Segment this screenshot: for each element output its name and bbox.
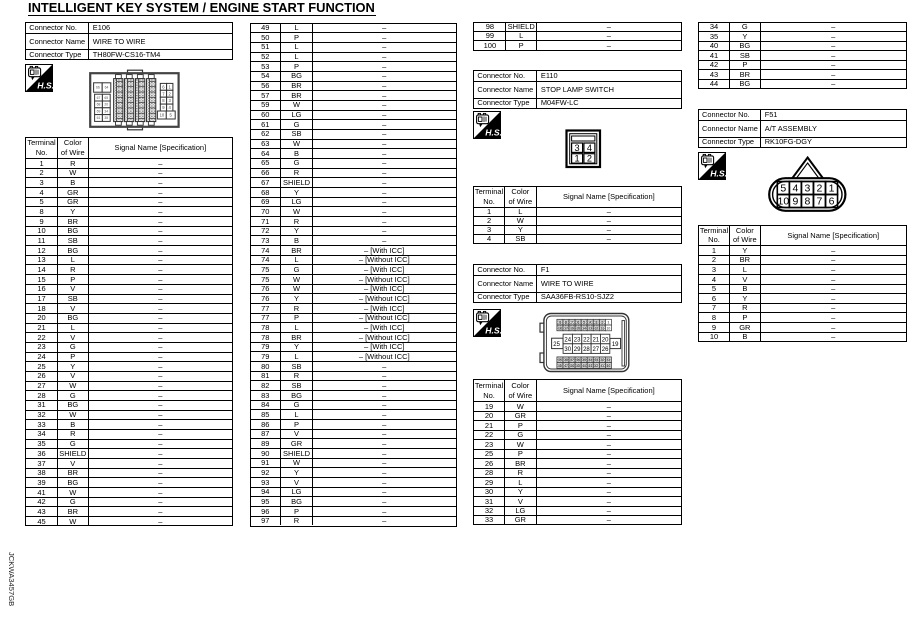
svg-text:19: 19 <box>612 342 619 348</box>
svg-text:23: 23 <box>574 337 581 343</box>
svg-text:31: 31 <box>607 358 611 362</box>
svg-text:38: 38 <box>564 358 568 362</box>
svg-text:20: 20 <box>104 103 108 107</box>
svg-text:4: 4 <box>792 183 798 195</box>
svg-text:H.S.: H.S. <box>486 325 502 335</box>
svg-text:5: 5 <box>780 183 786 195</box>
svg-text:45: 45 <box>576 363 580 367</box>
svg-text:16: 16 <box>570 326 574 330</box>
svg-text:33: 33 <box>594 358 598 362</box>
svg-text:41: 41 <box>600 363 604 367</box>
svg-text:67: 67 <box>97 96 101 100</box>
svg-text:36: 36 <box>576 358 580 362</box>
svg-text:22: 22 <box>583 337 590 343</box>
svg-text:2: 2 <box>817 183 823 195</box>
svg-text:11: 11 <box>601 326 605 330</box>
svg-text:7: 7 <box>817 196 823 208</box>
svg-text:40: 40 <box>607 363 611 367</box>
svg-text:30: 30 <box>564 347 571 353</box>
svg-text:H.S.: H.S. <box>486 127 502 137</box>
svg-text:24: 24 <box>564 337 571 343</box>
svg-text:42: 42 <box>594 363 598 367</box>
svg-text:43: 43 <box>588 363 592 367</box>
svg-text:35: 35 <box>582 358 586 362</box>
svg-text:2: 2 <box>587 154 592 164</box>
svg-text:48: 48 <box>558 363 562 367</box>
svg-text:H.S.: H.S. <box>37 80 53 90</box>
svg-text:34: 34 <box>104 109 108 113</box>
svg-text:3: 3 <box>575 143 580 153</box>
svg-text:68: 68 <box>97 103 101 107</box>
svg-text:18: 18 <box>558 326 562 330</box>
svg-text:44: 44 <box>582 363 586 367</box>
svg-text:46: 46 <box>570 363 574 367</box>
svg-text:9: 9 <box>792 196 798 208</box>
svg-text:3: 3 <box>805 183 811 195</box>
svg-text:27: 27 <box>592 347 599 353</box>
svg-text:35: 35 <box>104 116 108 120</box>
svg-text:34: 34 <box>588 358 592 362</box>
svg-text:32: 32 <box>600 358 604 362</box>
svg-text:1: 1 <box>829 183 835 195</box>
svg-text:47: 47 <box>564 363 568 367</box>
svg-text:28: 28 <box>583 347 590 353</box>
svg-text:4: 4 <box>587 143 592 153</box>
svg-text:39: 39 <box>558 358 562 362</box>
svg-text:61: 61 <box>97 116 101 120</box>
svg-text:17: 17 <box>564 326 568 330</box>
svg-text:10: 10 <box>777 196 789 208</box>
svg-text:1: 1 <box>575 154 580 164</box>
svg-text:21: 21 <box>592 337 599 343</box>
svg-text:10: 10 <box>160 113 165 118</box>
svg-text:8: 8 <box>805 196 811 208</box>
svg-text:12: 12 <box>594 326 598 330</box>
svg-text:10: 10 <box>607 326 611 330</box>
svg-text:29: 29 <box>574 347 581 353</box>
svg-text:H.S.: H.S. <box>710 168 726 178</box>
svg-text:69: 69 <box>97 109 101 113</box>
svg-text:66: 66 <box>96 86 100 90</box>
svg-text:14: 14 <box>582 326 586 330</box>
svg-text:26: 26 <box>602 347 609 353</box>
svg-text:25: 25 <box>553 342 560 348</box>
svg-text:37: 37 <box>570 358 574 362</box>
svg-text:64: 64 <box>105 86 109 90</box>
svg-text:6: 6 <box>829 196 835 208</box>
svg-text:13: 13 <box>588 326 592 330</box>
svg-text:15: 15 <box>576 326 580 330</box>
svg-text:65: 65 <box>104 96 108 100</box>
svg-text:20: 20 <box>602 337 609 343</box>
